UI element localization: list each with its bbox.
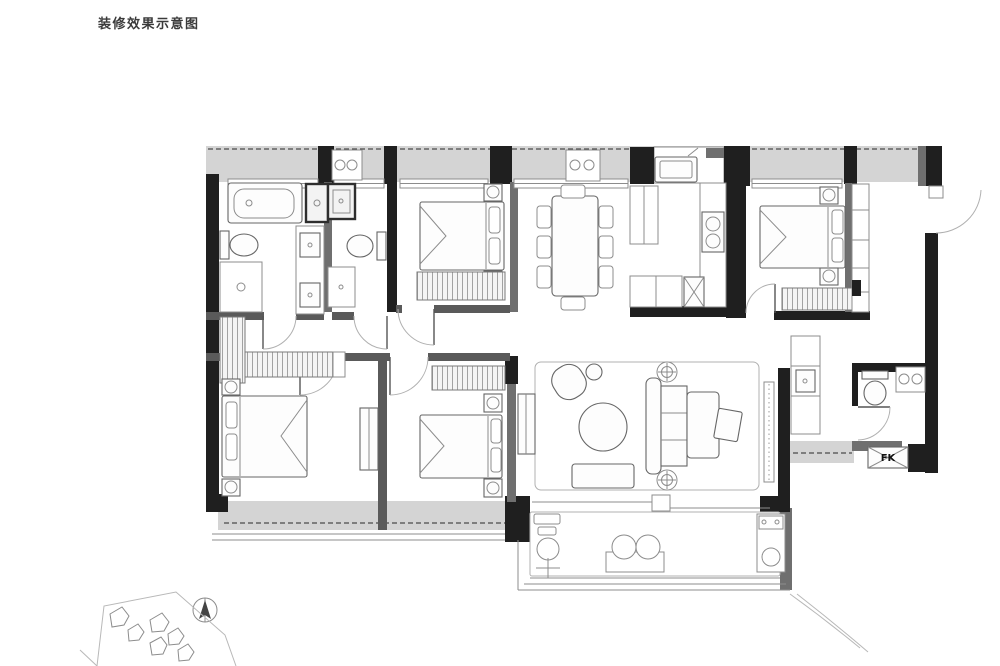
wall-between-bedrooms [378,355,387,530]
floorplan-page: FK 装修效果示意图 [0,0,1000,666]
floorplan-drawing: FK [0,0,1000,666]
door-bath3-swing [858,407,890,440]
toiletB-tank [377,232,386,260]
dining-chair-left-2 [537,236,551,258]
corridor-threshold [790,441,854,463]
dining-chair-right-1 [599,206,613,228]
wall-left-upper [206,174,219,328]
dining-chair-left-1 [537,206,551,228]
toilet3-bowl [864,381,886,405]
siteplan-boundary-2 [80,650,97,666]
dining-table [552,196,598,296]
sofa-chaise [687,392,719,458]
toiletA-tank [220,231,229,259]
bedroomR-pillow-2 [832,238,843,262]
wall-kitchen-south [630,306,728,317]
wall-shaft-block [908,444,936,472]
wall-right [925,233,938,473]
siteplan-building-1 [110,607,129,627]
shower-stall [306,184,328,222]
exercise-equipment-wheel [537,538,559,560]
bedroomR-pillow-1 [832,210,843,234]
entry-top-cap [918,146,926,186]
curtain-strip [764,382,774,482]
wall-left-corner [206,494,228,512]
dining-chair-top [561,185,585,198]
coffee-table [579,403,627,451]
dining-chair-right-2 [599,236,613,258]
wall-bedroomM-south [434,305,510,313]
wall-pier-7 [926,146,942,186]
exercise-equipment-bar-1 [534,514,560,524]
wall-living-south-stub [760,496,790,512]
wall-hall-north-3 [332,312,354,320]
door-bathB-swing [354,316,387,349]
shaft-label: FK [881,453,897,464]
wall-living-east [778,368,790,500]
shower-base [220,262,262,312]
dining-chair-bottom [561,297,585,310]
bedroom2-pillow-2 [491,448,501,472]
wall-pier-5 [724,146,750,186]
toiletB-bowl [347,235,373,257]
window-ledge-bottom [218,501,508,530]
planter-pot-1 [612,535,636,559]
context-line-2 [797,594,868,652]
wall-pier-6 [844,146,857,184]
entry-door-leaf [929,186,943,198]
sofa-seat [661,386,687,466]
kitchen-block-cap [706,148,724,158]
washing-machine [757,514,785,572]
sofa-back [646,378,661,474]
exercise-equipment-bar-2 [538,527,556,535]
wall-bedroomM-dining [510,182,518,312]
bedroomM-pillow-1 [489,207,500,233]
door-bedroom2-swing [390,357,428,395]
dining-chair-left-3 [537,266,551,288]
siteplan-building-6 [178,644,194,661]
wall-hall-south-3 [428,353,510,361]
siteplan-building-3 [150,613,169,632]
siteplan-building-2 [128,624,144,641]
living-bench [572,464,634,488]
door-bathA-swing [263,316,296,349]
armchair [546,359,591,405]
bedroomM-pillow-2 [489,238,500,264]
dining-chair-right-3 [599,266,613,288]
bedroomM-wardrobe [417,272,505,300]
balcony-slider-handle [652,495,670,511]
bedroom2-wardrobe [432,366,505,390]
bath3-vanity [896,367,925,392]
page-title: 装修效果示意图 [98,13,200,32]
wall-pier-4 [630,147,654,184]
side-table [586,364,602,380]
bedroom1-pillow-1 [226,402,237,428]
bedroom2-pillow-1 [491,419,501,443]
context-line-1 [790,594,860,648]
door-bedroomM-swing [398,309,434,345]
ottoman [714,408,743,442]
wall-bedroomM-south-stub [396,305,402,313]
planter-pot-2 [636,535,660,559]
siteplan-building-4 [168,628,184,645]
wall-kitchen-east [726,186,746,318]
wall-balcony-left [505,496,530,542]
bedroomR-wardrobe [782,288,852,310]
bedroom1-wardrobe-horizontal [245,352,333,377]
toilet3-tank [862,371,888,379]
wall-bathB-bedroomM [387,148,397,312]
door-bedroomR-swing [746,284,775,313]
pantry-basin [796,370,815,392]
bedroom1-wardrobe-endcap [333,352,345,377]
shoe-cabinet-block [852,280,861,296]
wall-bath3-west [852,372,858,406]
wall-bedroom2-east [507,384,516,502]
siteplan-building-5 [150,637,167,655]
kitchen-stove [702,212,724,252]
ac-unit-2 [566,150,600,181]
bathB-sink-cabinet [328,184,355,219]
bedroom2-bed [420,415,502,478]
bedroom1-pillow-2 [226,434,237,460]
vanityA-basin-2 [300,283,320,307]
toiletA-bowl [230,234,258,256]
wall-pier-3 [490,146,512,184]
wall-hall-south-2 [338,353,390,361]
vanityA-basin-1 [300,233,320,257]
bathB-cabinet [328,267,355,307]
bedroom1-wardrobe-vertical [220,317,245,383]
